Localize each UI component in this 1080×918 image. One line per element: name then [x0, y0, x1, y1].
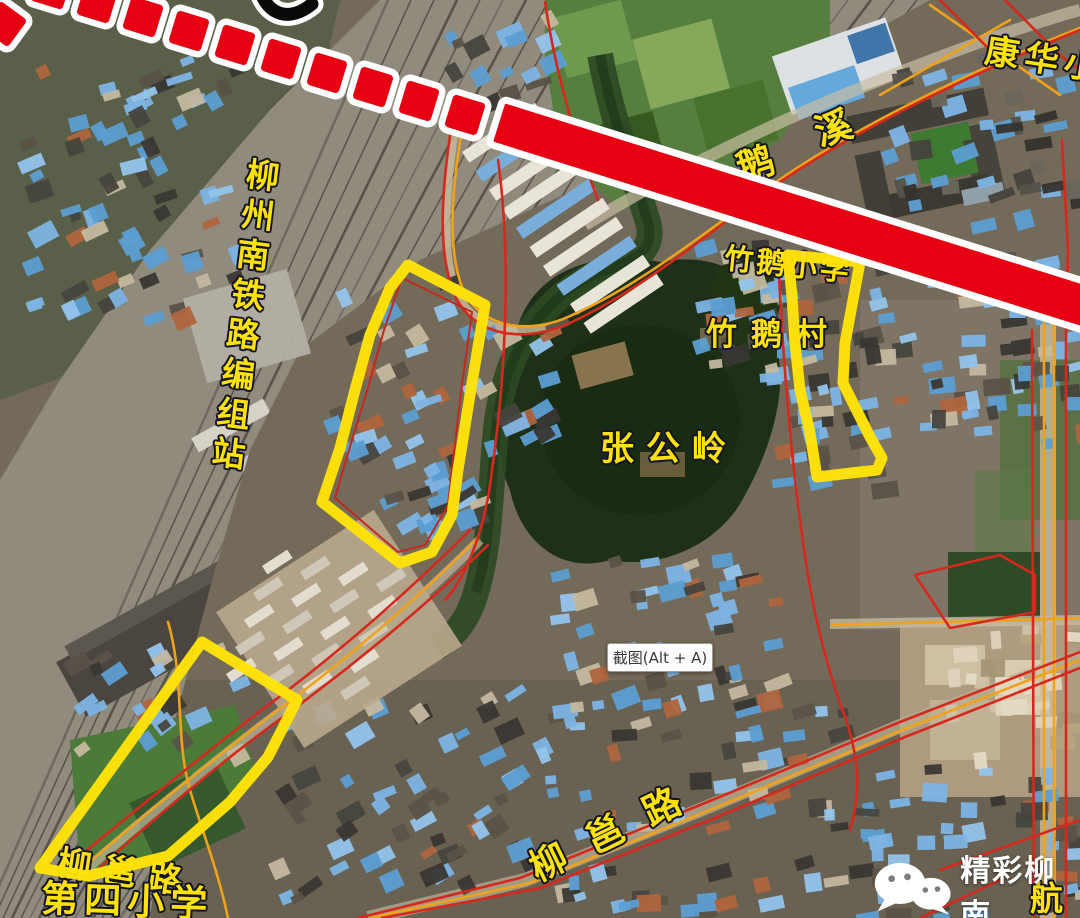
rail-line-solid-segment [489, 99, 1080, 341]
satellite-map-canvas[interactable]: 柳州南铁路编组站 张公岭 竹鹅村 竹鹅小学 鹅 溪 康华小 柳邕路 柳邕路 第四… [0, 0, 1080, 918]
watermark-text: 精彩柳南 [960, 846, 1080, 918]
wechat-icon [872, 861, 954, 918]
wechat-watermark: 精彩柳南 [872, 846, 1080, 918]
rail-line-dashed-segment [0, 0, 490, 140]
planned-rail-line [0, 0, 1080, 918]
screenshot-tooltip-button[interactable]: 截图(Alt + A) [607, 643, 713, 672]
